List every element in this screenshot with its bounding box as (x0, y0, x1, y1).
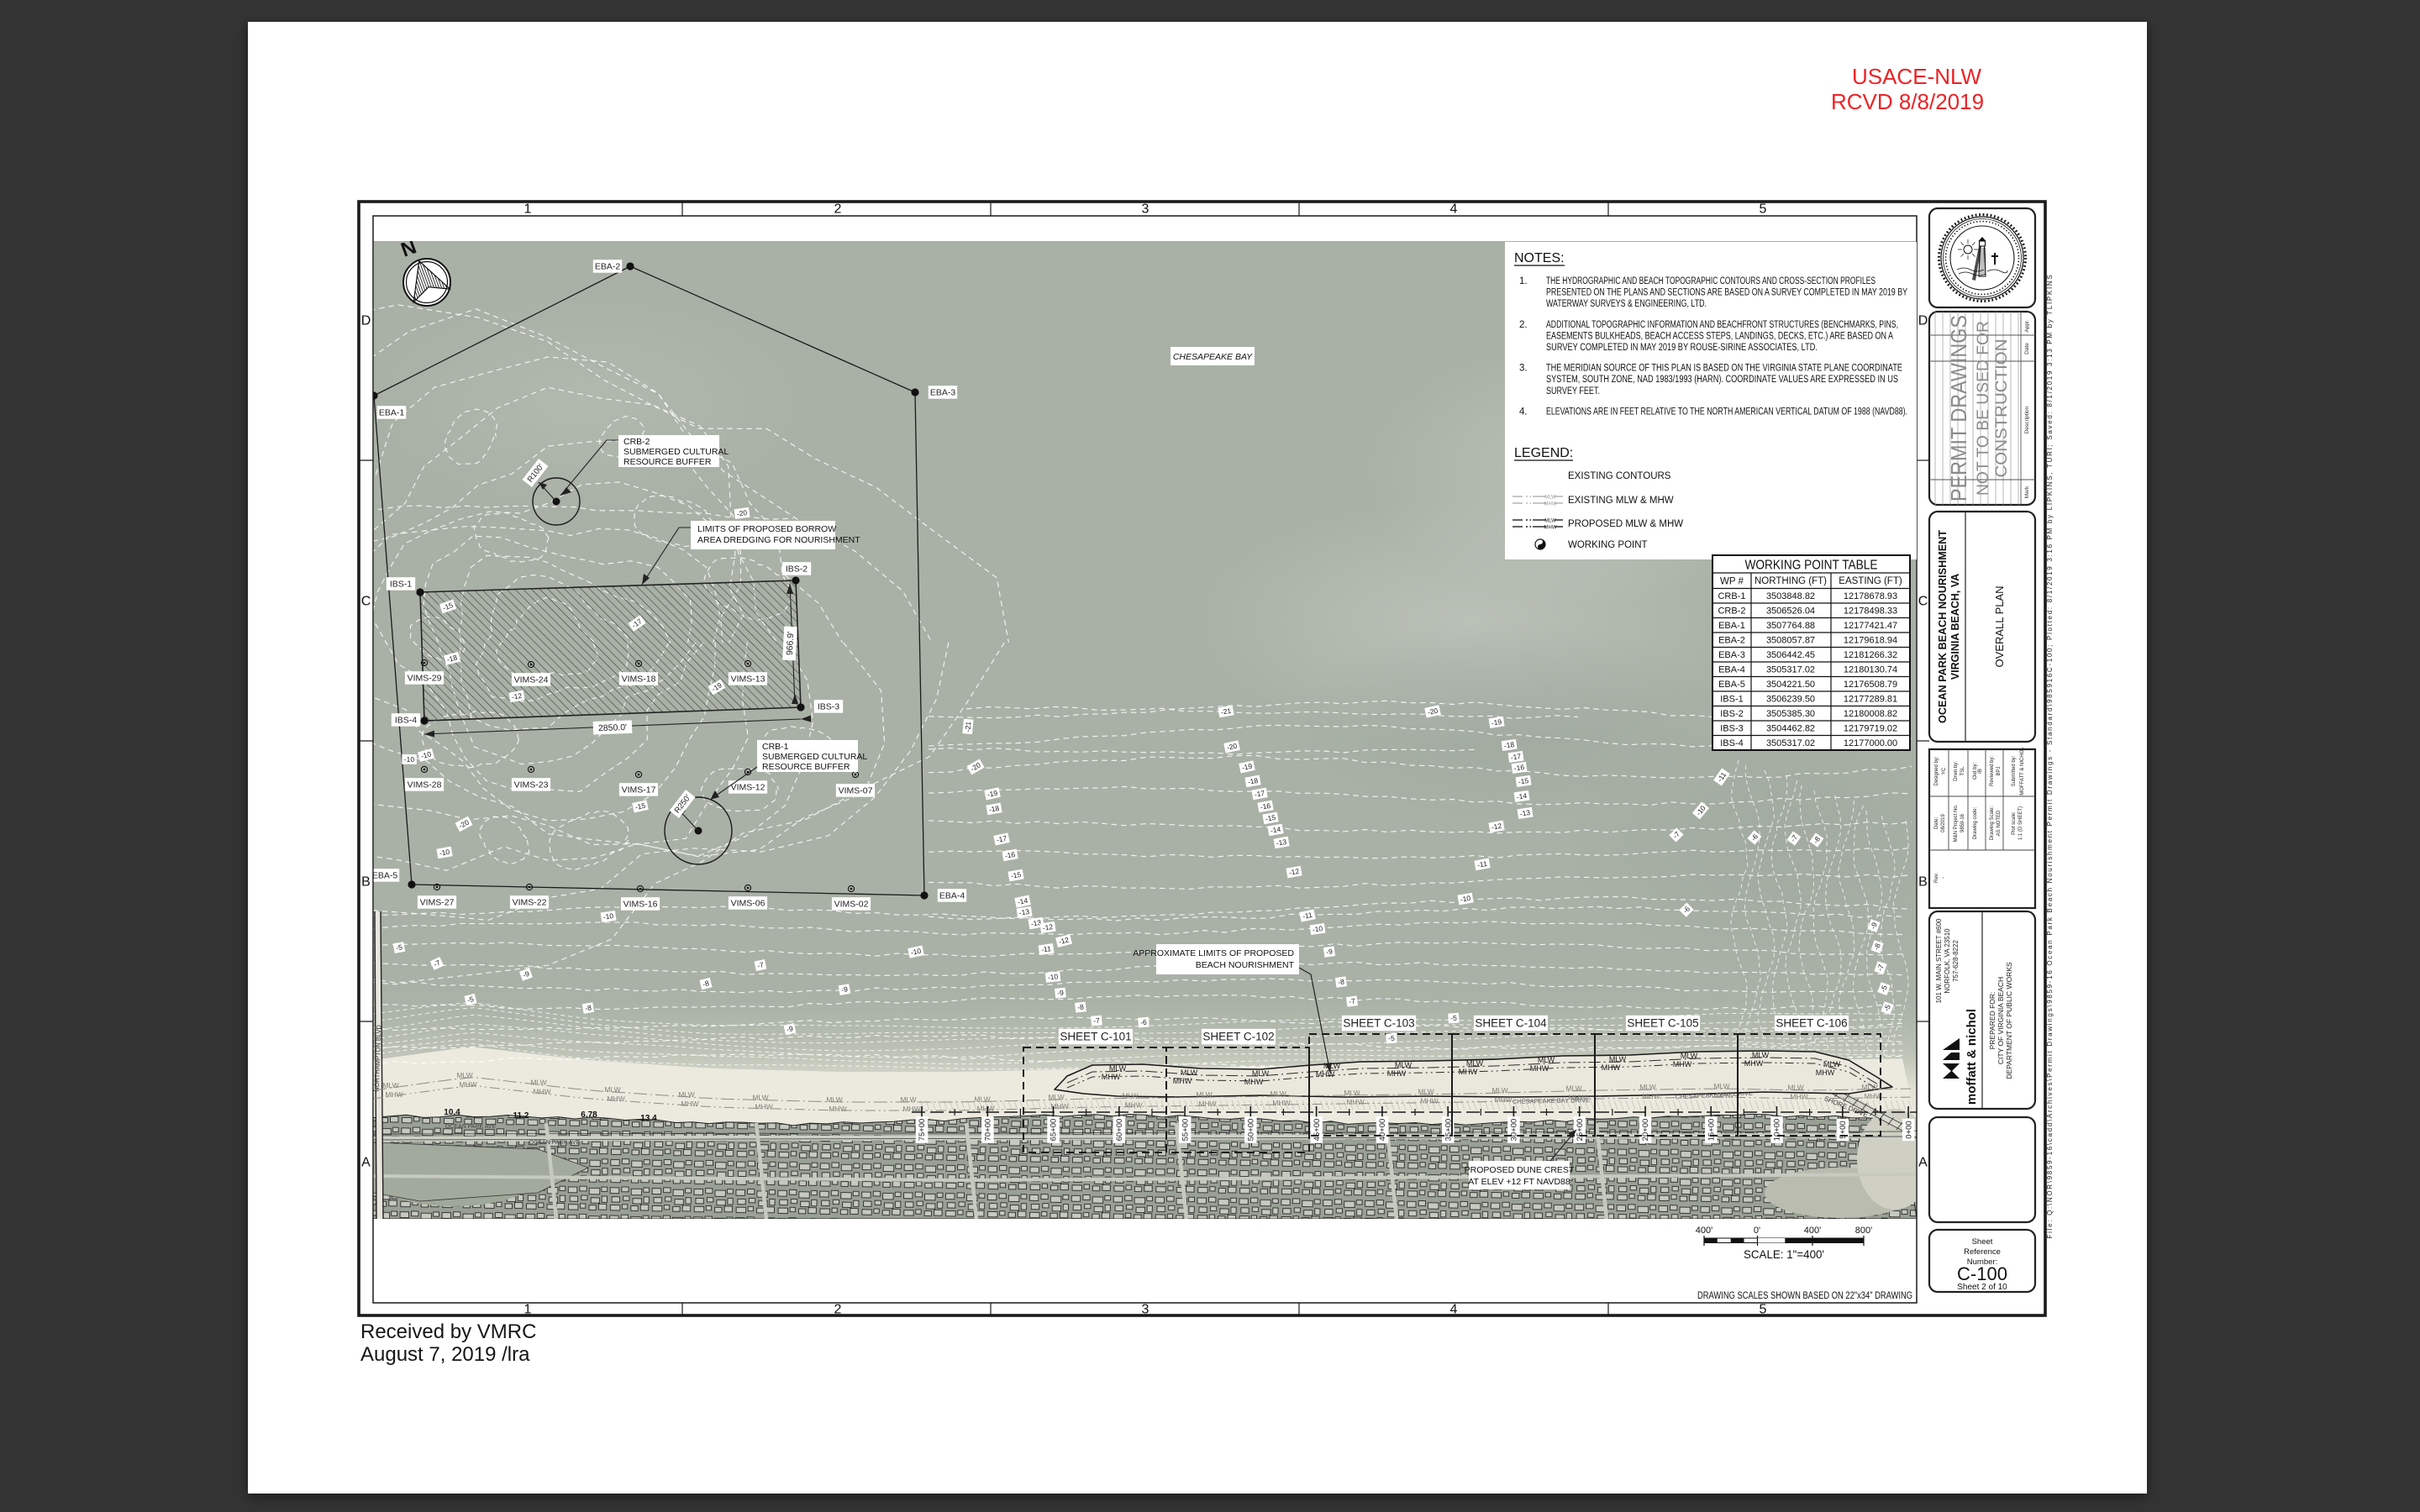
svg-text:15+00: 15+00 (1707, 1119, 1716, 1142)
svg-text:IBS-4: IBS-4 (1720, 738, 1744, 748)
svg-text:2: 2 (834, 1303, 842, 1317)
svg-text:PROPOSED DUNE CREST: PROPOSED DUNE CREST (1465, 1165, 1575, 1175)
svg-text:SHEET C-103: SHEET C-103 (1343, 1017, 1414, 1030)
svg-text:IBS-4: IBS-4 (395, 716, 417, 726)
svg-text:MLW: MLW (604, 1085, 620, 1094)
svg-text:MHW: MHW (1387, 1069, 1407, 1078)
svg-text:C: C (1918, 595, 1928, 609)
svg-text:MLW: MLW (1109, 1064, 1127, 1073)
svg-text:WORKING POINT TABLE: WORKING POINT TABLE (1745, 559, 1878, 573)
svg-text:-13: -13 (1018, 907, 1030, 917)
svg-text:MLW: MLW (1544, 496, 1556, 501)
svg-text:CRB-1: CRB-1 (1718, 591, 1745, 601)
svg-text:Drawing code:: Drawing code: (1973, 806, 1978, 839)
svg-text:MLW: MLW (1713, 1082, 1729, 1090)
svg-text:MLW: MLW (1196, 1090, 1212, 1099)
svg-text:75+00: 75+00 (918, 1119, 927, 1142)
svg-text:-15: -15 (1010, 870, 1022, 880)
svg-text:-13: -13 (1519, 808, 1531, 818)
svg-text:MHW: MHW (1173, 1077, 1192, 1085)
svg-text:Reference: Reference (1964, 1247, 2001, 1257)
svg-text:-10: -10 (404, 755, 415, 764)
svg-text:Rev.: Rev. (1934, 873, 1939, 883)
svg-text:IBS-2: IBS-2 (786, 564, 808, 575)
svg-text:-5: -5 (1388, 1034, 1396, 1043)
svg-text:A: A (1918, 1156, 1928, 1170)
svg-text:-8: -8 (1077, 1003, 1085, 1012)
svg-text:EXISTING MLW & MHW: EXISTING MLW & MHW (1568, 496, 1674, 506)
svg-text:3507764.88: 3507764.88 (1766, 621, 1815, 631)
svg-text:SURVEY COMPLETED IN MAY 2019 B: SURVEY COMPLETED IN MAY 2019 BY ROUSE-SI… (1546, 343, 1818, 353)
svg-text:MHW: MHW (1864, 1092, 1881, 1100)
svg-text:-18: -18 (1247, 776, 1259, 786)
svg-text:3: 3 (1142, 1303, 1149, 1317)
svg-text:MHW: MHW (1673, 1060, 1692, 1068)
svg-text:EBA-1: EBA-1 (379, 408, 405, 418)
svg-text:-17: -17 (1254, 789, 1265, 799)
svg-text:VIMS-17: VIMS-17 (622, 785, 656, 795)
svg-text:MLW: MLW (678, 1090, 694, 1099)
svg-text:MLW: MLW (752, 1094, 768, 1102)
svg-text:12179618.94: 12179618.94 (1844, 636, 1897, 646)
svg-text:NORTHING (FT): NORTHING (FT) (1754, 576, 1827, 586)
svg-text:C: C (361, 595, 371, 609)
svg-text:10+00: 10+00 (1773, 1119, 1782, 1142)
svg-text:MHW: MHW (533, 1087, 550, 1095)
svg-text:757-628-8222: 757-628-8222 (1952, 940, 1960, 982)
svg-text:EBA-5: EBA-5 (1718, 680, 1745, 690)
svg-text:VIMS-12: VIMS-12 (731, 783, 765, 793)
svg-text:4: 4 (1450, 202, 1458, 217)
svg-text:MLW: MLW (1344, 1089, 1360, 1097)
svg-text:WP #: WP # (1720, 577, 1744, 587)
svg-text:-12: -12 (1288, 867, 1300, 877)
svg-text:966.9': 966.9' (785, 632, 796, 656)
svg-text:SHEET C-105: SHEET C-105 (1627, 1017, 1698, 1030)
svg-text:-10: -10 (1047, 972, 1059, 981)
svg-text:August 7, 2019 /lra: August 7, 2019 /lra (360, 1343, 530, 1366)
svg-text:Description: Description (2024, 406, 2030, 433)
svg-text:Appr.: Appr. (2024, 319, 2030, 332)
svg-text:-16: -16 (1513, 763, 1525, 773)
svg-text:VIMS-22: VIMS-22 (513, 898, 547, 908)
svg-text:MHW: MHW (1568, 1094, 1586, 1102)
svg-text:MHW: MHW (829, 1105, 846, 1113)
svg-text:0+00: 0+00 (1904, 1121, 1913, 1138)
svg-text:Submitted by:: Submitted by: (2012, 755, 2017, 786)
svg-text:IBS-2: IBS-2 (1720, 709, 1744, 719)
svg-text:0': 0' (1754, 1226, 1760, 1236)
svg-text:EBA-1: EBA-1 (1718, 621, 1745, 631)
svg-text:MLW: MLW (1418, 1088, 1434, 1096)
svg-text:MLW: MLW (1823, 1060, 1841, 1068)
svg-text:MLW: MLW (1466, 1059, 1484, 1068)
svg-text:SUBMERGED CULTURAL: SUBMERGED CULTURAL (623, 447, 729, 457)
svg-text:SHEET C-101: SHEET C-101 (1060, 1031, 1131, 1043)
svg-text:3: 3 (1142, 202, 1149, 217)
svg-text:SUBMERGED CULTURAL: SUBMERGED CULTURAL (762, 752, 867, 762)
svg-text:D: D (1918, 314, 1928, 328)
svg-text:ELEVATIONS ARE IN FEET RELATIV: ELEVATIONS ARE IN FEET RELATIVE TO THE N… (1546, 407, 1907, 417)
svg-text:MLW: MLW (1861, 1083, 1877, 1091)
svg-text:IBS-3: IBS-3 (1720, 724, 1744, 734)
svg-text:RESOURCE BUFFER: RESOURCE BUFFER (762, 762, 850, 772)
svg-text:CRB-1: CRB-1 (762, 742, 789, 752)
svg-text:C-100: C-100 (1957, 1263, 2007, 1284)
svg-text:MHW: MHW (1420, 1097, 1438, 1105)
svg-text:CRB-2: CRB-2 (1718, 606, 1745, 617)
svg-text:MLW: MLW (1491, 1086, 1507, 1095)
svg-text:VIMS-27: VIMS-27 (420, 898, 455, 908)
svg-text:D: D (361, 314, 371, 328)
svg-text:MLW: MLW (1639, 1083, 1655, 1091)
svg-text:MHW: MHW (1459, 1068, 1478, 1076)
svg-text:12177000.00: 12177000.00 (1844, 738, 1897, 748)
svg-text:12180130.74: 12180130.74 (1844, 665, 1897, 675)
svg-text:-21: -21 (1220, 706, 1232, 717)
svg-text:-10: -10 (1312, 924, 1323, 934)
svg-text:DEPARTMENT OF PUBLIC WORKS: DEPARTMENT OF PUBLIC WORKS (2005, 962, 2013, 1079)
svg-text:-13: -13 (1276, 837, 1287, 848)
svg-text:6.78: 6.78 (581, 1110, 597, 1120)
svg-text:AS NOTED: AS NOTED (1996, 810, 2002, 836)
svg-text:70+00: 70+00 (984, 1119, 993, 1142)
svg-text:5: 5 (1760, 1303, 1767, 1317)
svg-text:EXISTING CONTOURS: EXISTING CONTOURS (1568, 471, 1671, 481)
svg-text:THE MERIDIAN SOURCE OF THIS PL: THE MERIDIAN SOURCE OF THIS PLAN IS BASE… (1546, 364, 1902, 374)
svg-text:-19: -19 (1491, 717, 1502, 727)
svg-text:MLW: MLW (1787, 1084, 1803, 1092)
svg-text:Date: Date (2024, 343, 2030, 354)
svg-text:MLW: MLW (1252, 1069, 1270, 1078)
svg-text:VIMS-06: VIMS-06 (731, 899, 765, 909)
svg-text:moffatt & nichol: moffatt & nichol (1965, 1009, 1979, 1105)
svg-text:10.4: 10.4 (444, 1108, 460, 1117)
svg-text:B: B (361, 875, 371, 890)
svg-text:3505317.02: 3505317.02 (1766, 665, 1815, 675)
svg-text:-12: -12 (1491, 822, 1502, 832)
svg-text:ADDITIONAL TOPOGRAPHIC INFORMA: ADDITIONAL TOPOGRAPHIC INFORMATION AND B… (1546, 320, 1898, 330)
svg-text:-6: -6 (1140, 1018, 1148, 1027)
svg-text:NORFOLK, VA 23510: NORFOLK, VA 23510 (1944, 928, 1951, 994)
svg-text:IBS-3: IBS-3 (818, 702, 839, 712)
svg-text:NOT TO BE USED FOR: NOT TO BE USED FOR (1975, 321, 1992, 496)
svg-text:VIMS-24: VIMS-24 (514, 675, 549, 685)
svg-text:3506239.50: 3506239.50 (1766, 695, 1815, 705)
svg-text:-16: -16 (1260, 801, 1271, 811)
svg-text:IBS-1: IBS-1 (1720, 695, 1744, 705)
svg-text:YC: YC (1942, 767, 1947, 774)
svg-text:MHW: MHW (1744, 1059, 1764, 1068)
svg-text:Sheet: Sheet (1972, 1237, 1993, 1247)
svg-text:-13: -13 (1030, 918, 1042, 928)
svg-text:-14: -14 (1516, 791, 1528, 801)
svg-text:PROPOSED MLW & MHW: PROPOSED MLW & MHW (1568, 519, 1683, 529)
svg-text:-15: -15 (1518, 776, 1529, 786)
svg-text:Designed by:: Designed by: (1934, 756, 1939, 785)
svg-text:OCEAN PARK BEACH NOURISHMENT: OCEAN PARK BEACH NOURISHMENT (1937, 530, 1949, 723)
svg-text:-15: -15 (1265, 813, 1276, 823)
svg-text:MLW: MLW (1538, 1056, 1555, 1064)
svg-text:MLW: MLW (1048, 1093, 1064, 1101)
svg-text:MHW: MHW (1544, 502, 1557, 507)
svg-text:-9: -9 (1057, 989, 1065, 998)
svg-text:MLW: MLW (1181, 1068, 1198, 1077)
svg-text:VIMS-02: VIMS-02 (834, 900, 869, 910)
svg-text:MHW: MHW (1602, 1063, 1621, 1072)
svg-text:1: 1 (524, 1303, 532, 1317)
svg-text:CONSTRUCTION: CONSTRUCTION (1993, 339, 2011, 478)
svg-text:BEACH NOURISHMENT: BEACH NOURISHMENT (1196, 960, 1295, 970)
svg-text:Received by VMRC: Received by VMRC (360, 1320, 536, 1343)
svg-text:A: A (361, 1156, 371, 1170)
svg-text:4.: 4. (1519, 407, 1528, 417)
svg-text:3504221.50: 3504221.50 (1766, 680, 1815, 690)
svg-text:MOFFATT & NICHOL: MOFFATT & NICHOL (2020, 747, 2025, 795)
svg-text:OCEAN PARK AVE: OCEAN PARK AVE (529, 1140, 581, 1146)
svg-text:MHW: MHW (607, 1095, 624, 1103)
svg-text:OCEAN PARK AVE: OCEAN PARK AVE (445, 1124, 497, 1130)
svg-text:40+00: 40+00 (1378, 1119, 1387, 1142)
svg-text:SHEET C-104: SHEET C-104 (1475, 1017, 1547, 1030)
svg-text:3504462.82: 3504462.82 (1766, 724, 1815, 734)
svg-text:VIMS-07: VIMS-07 (839, 786, 873, 796)
svg-text:3503848.82: 3503848.82 (1766, 591, 1815, 601)
svg-text:VIMS-23: VIMS-23 (514, 780, 549, 790)
svg-text:45+00: 45+00 (1313, 1119, 1322, 1142)
svg-text:5: 5 (1760, 202, 1767, 217)
svg-text:M&N Project No.: M&N Project No. (1954, 804, 1959, 842)
svg-text:MLW: MLW (1609, 1055, 1627, 1063)
svg-text:USACE-NLW: USACE-NLW (1852, 64, 1982, 89)
svg-text:VIMS-13: VIMS-13 (731, 675, 765, 685)
svg-text:OVERALL PLAN: OVERALL PLAN (1993, 585, 2006, 667)
svg-text:EBA-4: EBA-4 (939, 891, 965, 901)
svg-text:MHW: MHW (1244, 1078, 1264, 1086)
svg-text:-11: -11 (1041, 944, 1052, 954)
svg-text:EASTING (FT): EASTING (FT) (1839, 576, 1902, 586)
svg-text:2850.0': 2850.0' (598, 722, 628, 733)
svg-text:MLW: MLW (1681, 1052, 1698, 1060)
svg-text:-7: -7 (1093, 1016, 1101, 1026)
svg-text:-21: -21 (963, 721, 972, 732)
svg-text:LIMITS OF PROPOSED BORROW: LIMITS OF PROPOSED BORROW (697, 524, 836, 534)
svg-text:VIMS-16: VIMS-16 (623, 900, 658, 910)
svg-text:AREA DREDGING FOR NOURISHMENT: AREA DREDGING FOR NOURISHMENT (697, 535, 860, 545)
svg-text:SHEET C-102: SHEET C-102 (1202, 1031, 1274, 1043)
svg-text:MHW: MHW (681, 1100, 698, 1108)
svg-text:13.4: 13.4 (640, 1114, 657, 1123)
svg-text:SHEET C-106: SHEET C-106 (1776, 1017, 1847, 1030)
svg-text:MHW: MHW (1790, 1093, 1807, 1101)
svg-text:File: Q:\NOR\9859-16\cadd\Arch: File: Q:\NOR\9859-16\cadd\Archives\Permi… (2046, 274, 2054, 1239)
svg-text:55+00: 55+00 (1181, 1119, 1190, 1142)
svg-text:Sheet 2 of 10: Sheet 2 of 10 (1957, 1283, 2007, 1292)
svg-text:IBS-1: IBS-1 (390, 580, 412, 590)
svg-text:MLW: MLW (1752, 1051, 1770, 1059)
svg-text:12180008.82: 12180008.82 (1844, 709, 1897, 719)
svg-text:400': 400' (1804, 1226, 1821, 1236)
svg-text:RCVD 8/8/2019: RCVD 8/8/2019 (1831, 89, 1984, 114)
svg-text:MLW: MLW (1395, 1061, 1413, 1069)
svg-text:MLW: MLW (1323, 1062, 1341, 1070)
svg-text:3506442.45: 3506442.45 (1766, 650, 1815, 660)
svg-text:MHW: MHW (1642, 1092, 1660, 1100)
svg-text:11.2: 11.2 (513, 1111, 529, 1121)
svg-text:EBA-4: EBA-4 (1718, 665, 1745, 675)
svg-text:MHW: MHW (459, 1080, 476, 1089)
svg-text:THE HYDROGRAPHIC AND BEACH TOP: THE HYDROGRAPHIC AND BEACH TOPOGRAPHIC C… (1546, 276, 1875, 286)
svg-text:-17: -17 (1510, 752, 1522, 762)
svg-text:-5: -5 (1450, 1014, 1458, 1023)
svg-text:DRAWING SCALES SHOWN BASED ON: DRAWING SCALES SHOWN BASED ON 22"x34" DR… (1697, 1291, 1912, 1301)
svg-text:MHW: MHW (1816, 1068, 1835, 1077)
svg-text:12178678.93: 12178678.93 (1844, 591, 1897, 601)
svg-text:RESOURCE BUFFER: RESOURCE BUFFER (623, 457, 712, 467)
svg-text:1.: 1. (1519, 276, 1528, 286)
svg-text:CHESAPEAKE BAY: CHESAPEAKE BAY (1173, 352, 1253, 362)
svg-text:-18: -18 (1503, 740, 1515, 750)
svg-text:EBA-3: EBA-3 (930, 388, 956, 398)
svg-text:VIMS-28: VIMS-28 (408, 780, 442, 790)
svg-text:EBA-2: EBA-2 (1718, 636, 1745, 646)
svg-text:-20: -20 (736, 508, 748, 518)
svg-text:3505317.02: 3505317.02 (1766, 738, 1815, 748)
svg-text:MHW: MHW (976, 1105, 994, 1113)
svg-text:Reviewed by:: Reviewed by: (1990, 756, 1995, 786)
svg-text:MLW: MLW (826, 1095, 842, 1104)
svg-text:20+00: 20+00 (1641, 1119, 1650, 1142)
svg-text:MLW: MLW (900, 1095, 916, 1104)
svg-text:MHW: MHW (755, 1103, 772, 1111)
svg-text:-16: -16 (1004, 850, 1016, 860)
svg-text:Drawing Scale:: Drawing Scale: (1990, 806, 1995, 840)
svg-text:400': 400' (1696, 1226, 1712, 1236)
svg-text:12179719.02: 12179719.02 (1844, 724, 1897, 734)
svg-text:CITY OF VIRGINIA BEACH: CITY OF VIRGINIA BEACH (1996, 977, 2005, 1064)
svg-text:2: 2 (834, 202, 842, 217)
svg-text:MLW: MLW (1565, 1084, 1581, 1093)
svg-text:SYSTEM, SOUTH ZONE, NAD 1983/1: SYSTEM, SOUTH ZONE, NAD 1983/1993 (HARN)… (1546, 375, 1898, 385)
svg-text:12181266.32: 12181266.32 (1844, 650, 1897, 660)
svg-text:65+00: 65+00 (1050, 1119, 1059, 1142)
svg-text:12176508.79: 12176508.79 (1844, 680, 1897, 690)
svg-text:MHW: MHW (1316, 1070, 1335, 1079)
svg-text:WATERWAY SURVEYS & ENGINEERING: WATERWAY SURVEYS & ENGINEERING, LTD. (1546, 299, 1707, 309)
svg-text:Date:: Date: (1934, 816, 1939, 829)
svg-text:-10: -10 (439, 848, 450, 858)
svg-text:-10: -10 (1460, 894, 1471, 904)
svg-text:EASEMENTS BULKHEADS, BEACH ACC: EASEMENTS BULKHEADS, BEACH ACCESS STEPS,… (1546, 331, 1893, 341)
svg-text:CRB-2: CRB-2 (623, 437, 650, 447)
svg-text:60+00: 60+00 (1115, 1119, 1124, 1142)
svg-text:MLW: MLW (530, 1078, 546, 1086)
svg-text:EBA-5: EBA-5 (372, 871, 398, 881)
svg-text:WORKING POINT: WORKING POINT (1568, 540, 1648, 550)
svg-text:-18: -18 (988, 804, 1000, 814)
svg-text:3506526.04: 3506526.04 (1766, 606, 1815, 617)
svg-text:MHW: MHW (1102, 1073, 1121, 1081)
svg-text:-12: -12 (1042, 922, 1054, 932)
svg-text:25+00: 25+00 (1576, 1119, 1585, 1142)
svg-text:MHW: MHW (1198, 1100, 1216, 1108)
svg-text:BPJ: BPJ (1996, 766, 2002, 775)
svg-text:-11: -11 (1476, 859, 1487, 869)
svg-text:MHW: MHW (1716, 1091, 1733, 1100)
svg-text:-12: -12 (511, 691, 523, 701)
svg-text:Drwn by:: Drwn by: (1954, 761, 1959, 781)
svg-text:12177421.47: 12177421.47 (1844, 621, 1897, 631)
svg-text:SCALE: 1"=400': SCALE: 1"=400' (1744, 1247, 1824, 1261)
svg-text:-: - (1941, 877, 1946, 879)
svg-text:2.: 2. (1519, 320, 1528, 330)
svg-text:4: 4 (1450, 1303, 1458, 1317)
svg-text:PREPARED FOR:: PREPARED FOR: (1988, 992, 1996, 1050)
svg-text:Mark: Mark (2024, 486, 2030, 498)
svg-text:1:1 (D SHEET): 1:1 (D SHEET) (2018, 806, 2023, 840)
svg-text:-14: -14 (1270, 825, 1281, 835)
svg-text:MLW: MLW (974, 1095, 990, 1104)
svg-text:LEGEND:: LEGEND: (1514, 446, 1573, 460)
svg-text:PRESENTED ON THE PLANS AND SEC: PRESENTED ON THE PLANS AND SECTIONS ARE … (1546, 288, 1907, 298)
svg-text:Plot scale:: Plot scale: (2012, 811, 2017, 835)
svg-text:AT ELEV +12 FT NAVD88: AT ELEV +12 FT NAVD88 (1468, 1177, 1570, 1187)
svg-text:NOTES:: NOTES: (1514, 251, 1565, 265)
svg-text:3505385.30: 3505385.30 (1766, 709, 1815, 719)
svg-text:800': 800' (1855, 1226, 1872, 1236)
svg-text:MHW: MHW (1530, 1064, 1549, 1073)
svg-text:MLW: MLW (1122, 1091, 1138, 1100)
svg-text:MLW: MLW (382, 1081, 398, 1089)
svg-text:TSL: TSL (1960, 766, 1965, 776)
svg-text:3.: 3. (1519, 364, 1528, 374)
svg-text:-10: -10 (602, 911, 614, 921)
svg-text:MLW: MLW (1270, 1089, 1286, 1098)
svg-text:12177289.81: 12177289.81 (1844, 695, 1897, 705)
svg-text:B: B (1918, 875, 1928, 890)
svg-text:EBA-3: EBA-3 (1718, 650, 1745, 660)
svg-text:08/2019: 08/2019 (1941, 814, 1946, 832)
svg-text:EBA-2: EBA-2 (595, 262, 621, 272)
svg-text:VIRGINIA BEACH, VA: VIRGINIA BEACH, VA (1949, 574, 1961, 680)
svg-text:VIMS-18: VIMS-18 (622, 675, 656, 685)
svg-text:30+00: 30+00 (1510, 1119, 1519, 1142)
svg-text:50+00: 50+00 (1247, 1119, 1256, 1142)
svg-text:APPROXIMATE LIMITS OF PROPOSED: APPROXIMATE LIMITS OF PROPOSED (1133, 948, 1294, 958)
svg-text:SURVEY FEET.: SURVEY FEET. (1546, 386, 1600, 396)
svg-text:PERMIT DRAWINGS: PERMIT DRAWINGS (1946, 315, 1971, 501)
svg-text:9859-16: 9859-16 (1960, 813, 1965, 832)
svg-text:VIMS-29: VIMS-29 (408, 674, 442, 684)
svg-text:MHW: MHW (385, 1090, 402, 1099)
svg-text:3508057.87: 3508057.87 (1766, 636, 1815, 646)
svg-text:MLW: MLW (456, 1071, 472, 1079)
svg-text:1: 1 (524, 202, 532, 217)
svg-text:101 W. MAIN STREET #600: 101 W. MAIN STREET #600 (1935, 918, 1943, 1003)
svg-text:IB: IB (1978, 769, 1983, 774)
svg-text:12178498.33: 12178498.33 (1844, 606, 1897, 617)
